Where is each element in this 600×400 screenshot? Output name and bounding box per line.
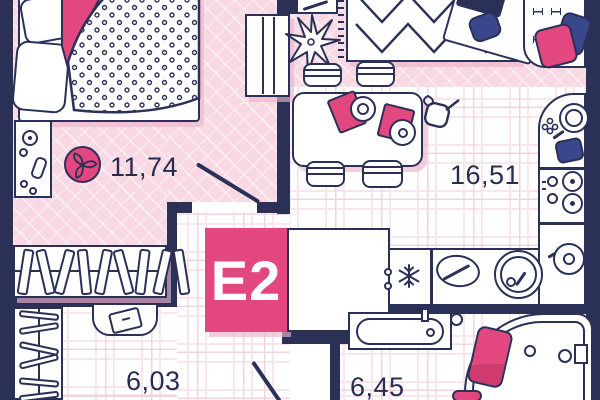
round-sink-basin — [500, 256, 537, 293]
hanger-icon — [16, 248, 34, 295]
counter-divider — [540, 167, 584, 170]
rug-fringe — [338, 0, 344, 58]
burner-dot — [570, 201, 575, 206]
wall-bedroom-kitchen — [277, 88, 290, 214]
trinket-icon — [29, 187, 37, 195]
teapot-lid — [563, 253, 575, 265]
hanger-icon — [112, 248, 135, 295]
hall-hangers — [18, 312, 60, 400]
plate-inner — [357, 103, 369, 115]
sink-drain — [426, 328, 435, 337]
pouf-blades-icon — [64, 146, 101, 183]
wardrobe-door-line — [262, 17, 264, 94]
wall-left — [0, 0, 13, 400]
hanger-icon — [19, 378, 59, 389]
area-label-hallway: 6,03 — [126, 366, 181, 397]
stool — [356, 61, 395, 87]
unit-label: E2 — [211, 248, 282, 313]
rack-hangers — [20, 250, 162, 294]
counter-divider — [540, 222, 584, 225]
tub-faucet-knob — [558, 349, 572, 363]
oven-mark — [542, 188, 546, 190]
hanger-icon — [34, 248, 55, 295]
counter-divider — [430, 250, 433, 304]
wardrobe-door-line — [273, 17, 275, 94]
duvet-with-blanket — [18, 0, 202, 126]
hanger-icon — [19, 310, 60, 321]
hanger-icon — [19, 390, 60, 400]
sink-drain — [506, 277, 516, 287]
area-label-bathroom: 6,45 — [350, 372, 405, 400]
hanger-icon — [19, 322, 60, 335]
flower-knob-icon — [541, 117, 559, 135]
wall-hall-bathroom — [330, 332, 340, 400]
hanger-icon — [94, 248, 114, 295]
hanger-icon — [134, 249, 151, 296]
stool — [306, 161, 345, 187]
trinket-icon — [20, 180, 28, 188]
stool — [303, 63, 342, 87]
tub-faucet-icon — [574, 344, 588, 364]
sofa-tuft-icon — [551, 8, 561, 15]
watering-can-icon — [418, 92, 462, 134]
stove-knob — [547, 193, 558, 204]
wall-tap-icon — [450, 313, 463, 326]
hanger-icon — [19, 353, 60, 370]
hanger-icon — [53, 248, 76, 295]
sofa-tuft-icon — [533, 8, 543, 15]
wall-bedroom-door-stub-right — [257, 202, 290, 213]
floorplan: 11,74 16,51 — [0, 0, 600, 400]
stool — [362, 160, 403, 188]
door-pivot-icon — [384, 268, 392, 276]
stove-knob — [547, 176, 558, 187]
door-pivot-icon — [384, 282, 392, 290]
bath-mat-icon — [452, 390, 482, 400]
plate-inner — [398, 128, 408, 138]
tub-drain — [524, 345, 536, 357]
sink-faucet-icon — [421, 308, 429, 322]
trinket-icon — [19, 148, 28, 157]
pan-inner — [565, 109, 583, 127]
oven-mark — [542, 181, 546, 183]
area-label-bedroom: 11,74 — [110, 152, 178, 183]
unit-label-badge: E2 — [205, 228, 287, 332]
hanger-icon — [76, 249, 92, 296]
area-label-kitchen: 16,51 — [450, 160, 520, 191]
lamp-dot — [28, 136, 32, 140]
fridge-snowflake-icon — [396, 263, 422, 289]
burner-dot — [570, 179, 575, 184]
